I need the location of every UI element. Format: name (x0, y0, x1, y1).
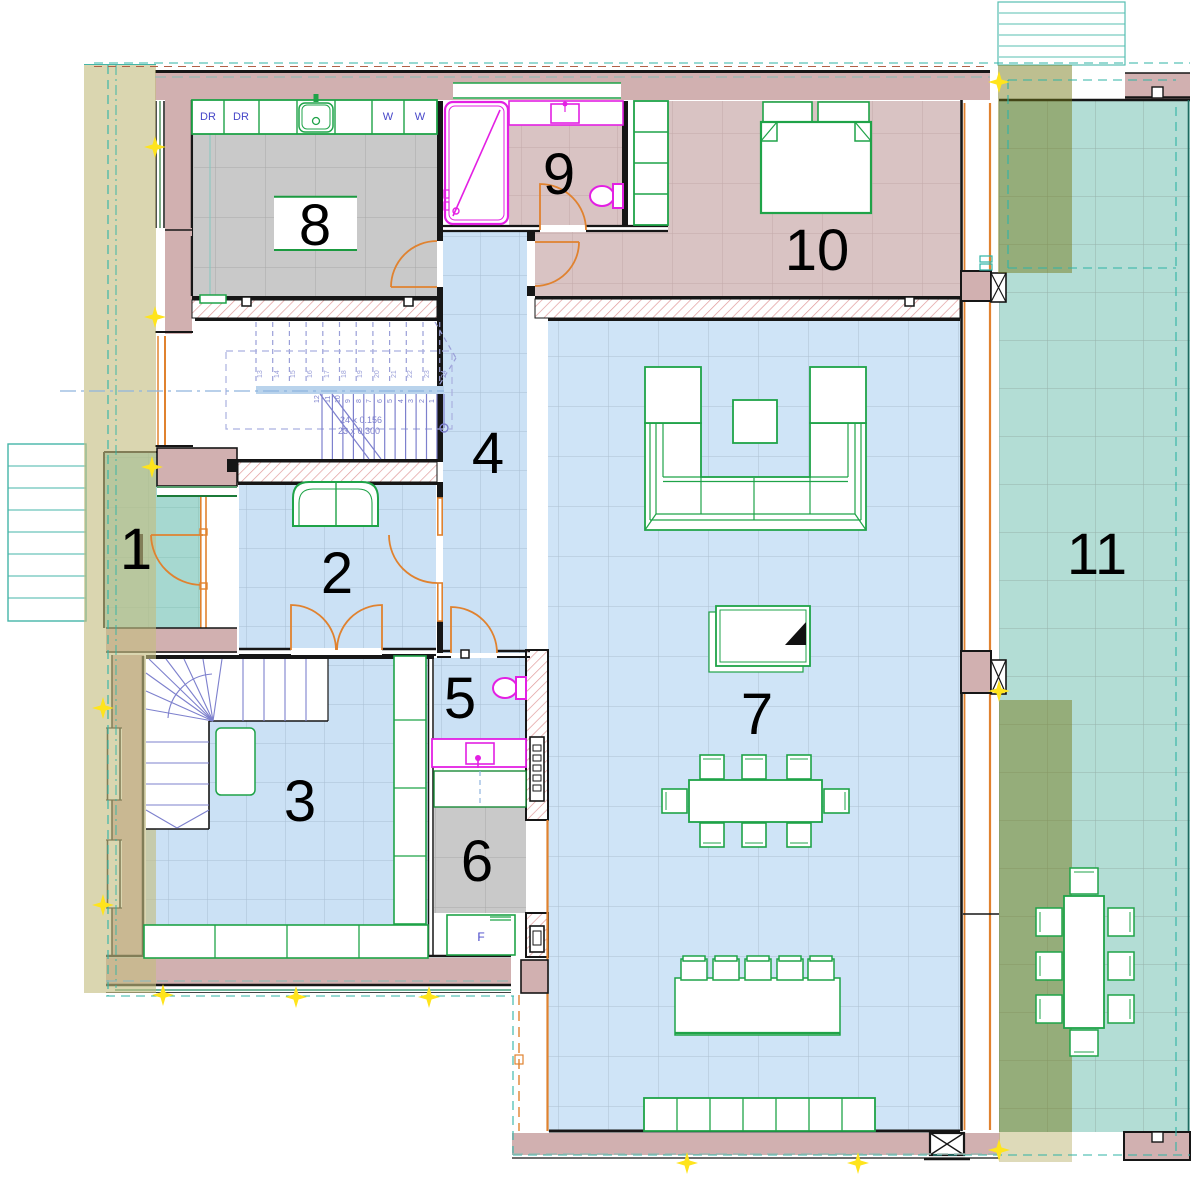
svg-text:6: 6 (377, 399, 384, 403)
svg-text:11: 11 (325, 396, 332, 403)
svg-text:19: 19 (357, 370, 364, 378)
svg-text:3: 3 (408, 399, 415, 403)
svg-text:W: W (415, 111, 426, 123)
svg-text:8: 8 (356, 399, 363, 403)
svg-text:F: F (477, 930, 484, 944)
svg-text:22: 22 (407, 370, 414, 378)
svg-text:1: 1 (120, 517, 152, 582)
svg-text:15: 15 (290, 370, 297, 378)
svg-text:18: 18 (341, 370, 348, 378)
svg-text:5: 5 (387, 399, 394, 403)
svg-text:7: 7 (366, 399, 373, 403)
svg-text:24: 24 (441, 370, 448, 378)
svg-text:24 x 0.156: 24 x 0.156 (340, 415, 382, 425)
svg-text:8: 8 (299, 193, 331, 258)
svg-text:DR: DR (200, 111, 216, 123)
svg-text:W: W (383, 111, 394, 123)
svg-text:9: 9 (543, 142, 575, 207)
svg-text:14: 14 (274, 370, 281, 378)
svg-text:4: 4 (398, 399, 405, 403)
svg-text:20: 20 (374, 370, 381, 378)
svg-text:10: 10 (785, 218, 850, 283)
svg-text:3: 3 (284, 769, 316, 834)
svg-text:12: 12 (314, 395, 321, 403)
svg-text:5: 5 (444, 666, 476, 731)
svg-text:13: 13 (257, 370, 264, 378)
svg-text:16: 16 (307, 370, 314, 378)
svg-text:21: 21 (391, 370, 398, 378)
svg-text:1: 1 (429, 399, 436, 403)
svg-text:2: 2 (419, 399, 426, 403)
svg-text:2: 2 (321, 541, 353, 606)
svg-text:23 x 0.300: 23 x 0.300 (338, 426, 380, 436)
svg-text:11: 11 (1067, 522, 1127, 587)
svg-text:4: 4 (472, 421, 504, 486)
svg-text:9: 9 (345, 399, 352, 403)
svg-text:DR: DR (233, 111, 249, 123)
svg-text:23: 23 (424, 370, 431, 378)
svg-text:17: 17 (324, 370, 331, 378)
svg-text:10: 10 (335, 395, 342, 403)
svg-text:7: 7 (741, 682, 773, 747)
svg-text:6: 6 (461, 829, 493, 894)
